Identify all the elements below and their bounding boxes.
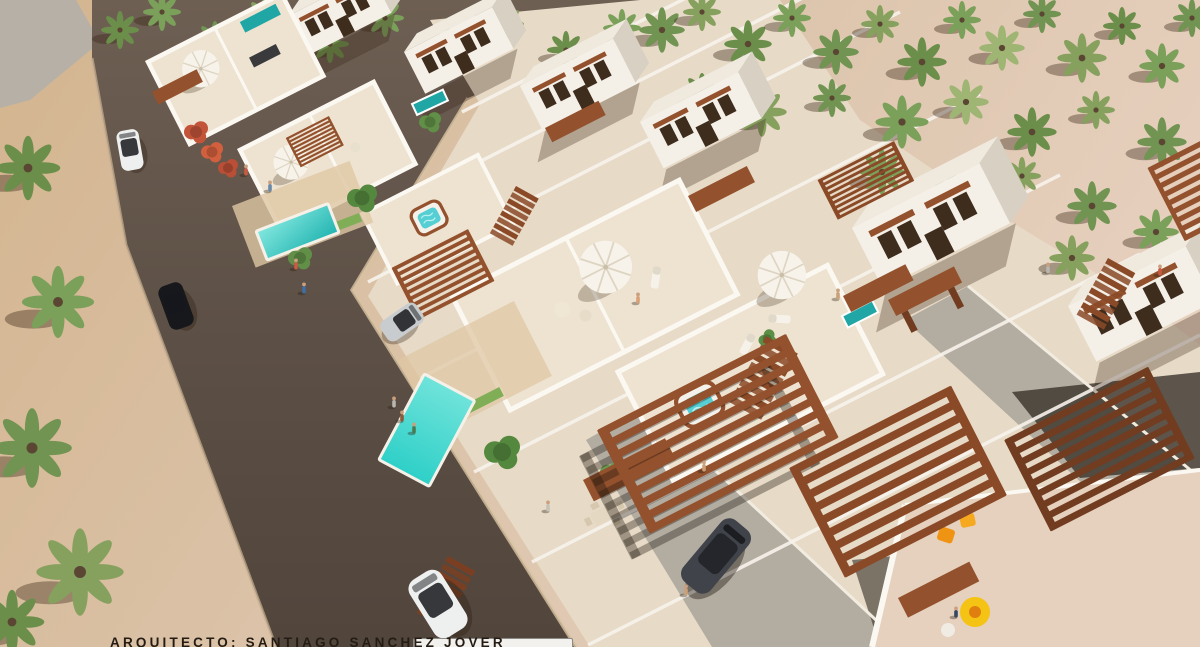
- yellow-parasol-top: [969, 606, 981, 618]
- render-viewport: ARQUITECTO: SANTIAGO SANCHEZ JOVER: [0, 0, 1200, 647]
- patio-table: [941, 623, 955, 637]
- sun-lounger: [768, 314, 790, 323]
- architect-caption: ARQUITECTO: SANTIAGO SANCHEZ JOVER: [110, 635, 506, 647]
- render-scene: [0, 0, 1200, 647]
